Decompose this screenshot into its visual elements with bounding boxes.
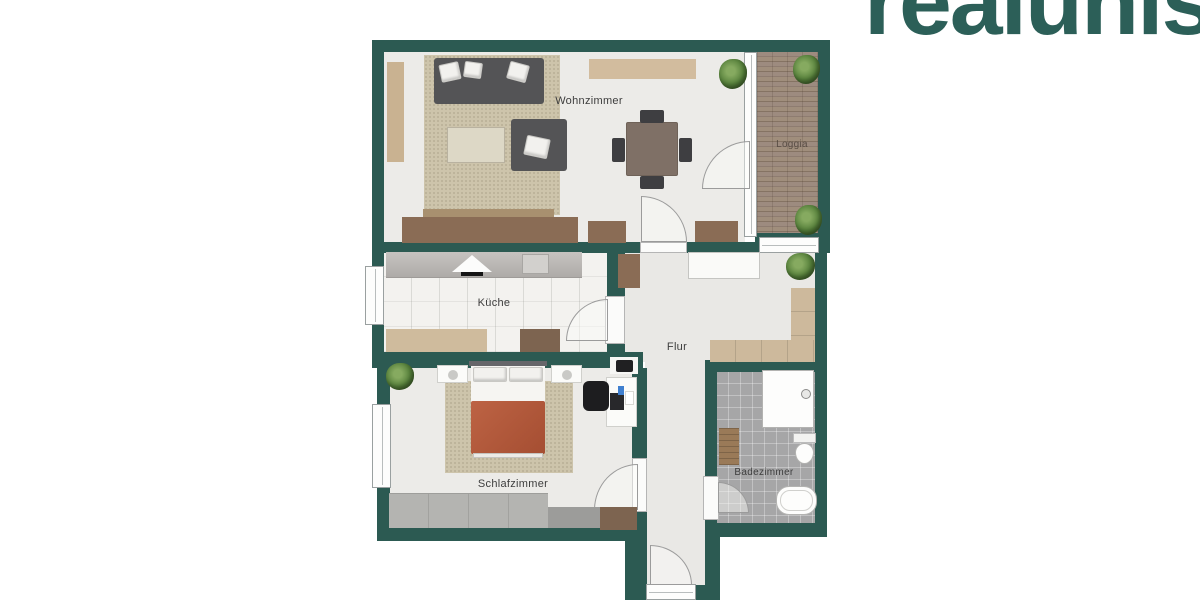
kitchen-table <box>520 329 560 352</box>
entrance-door-sill <box>646 584 696 600</box>
shower <box>762 370 814 428</box>
bedroom-mat <box>548 507 600 528</box>
dining-chair-west <box>612 138 625 162</box>
wall-left-mid <box>372 323 384 352</box>
wall-right-main <box>815 238 827 537</box>
cabinet-flur <box>618 254 640 288</box>
flur-loggia-window <box>759 237 819 253</box>
desk-accessory <box>618 386 624 395</box>
armchair <box>511 119 567 171</box>
laptop <box>610 393 624 410</box>
bedroom-window <box>372 404 391 488</box>
wall-bath-bottom <box>705 523 827 537</box>
office-chair <box>583 381 609 411</box>
brand-logo: realunis <box>864 0 1200 46</box>
door-frame-kitchen <box>605 296 625 344</box>
wall-vestibule-left <box>625 541 647 600</box>
dining-table <box>626 122 678 176</box>
floor-flur-corridor <box>645 362 705 541</box>
bedroom-dresser <box>600 507 637 530</box>
coffee-rug <box>447 127 505 163</box>
desk-paper <box>625 391 634 405</box>
cabinet-b <box>695 221 738 242</box>
hall-sideboard <box>688 252 760 279</box>
dining-chair-east <box>679 138 692 162</box>
nightstand-left <box>437 365 468 383</box>
sideboard-long <box>402 217 578 243</box>
nightstand-right <box>551 365 582 383</box>
wall-shelf <box>387 62 404 162</box>
bathtub <box>776 486 817 515</box>
room-label-wohnzimmer: Wohnzimmer <box>555 95 623 107</box>
room-label-flur: Flur <box>667 341 687 353</box>
wall-top <box>372 40 830 52</box>
dining-chair-north <box>640 110 664 123</box>
room-label-schlafzimmer: Schlafzimmer <box>478 478 548 490</box>
double-bed <box>469 361 547 458</box>
kitchen-sink <box>522 254 549 274</box>
sofa <box>434 58 544 104</box>
room-label-badezimmer: Badezimmer <box>734 467 793 478</box>
kitchen-window <box>365 266 384 325</box>
sideboard-top <box>589 59 696 79</box>
kitchen-bench <box>386 329 487 352</box>
room-label-loggia: Loggia <box>776 139 808 150</box>
toilet-tank <box>793 433 816 443</box>
room-label-kueche: Küche <box>478 297 511 309</box>
bedroom-wardrobe <box>389 493 548 528</box>
cabinet-a <box>588 221 626 243</box>
door-frame-bathroom <box>703 476 719 520</box>
bath-bench <box>719 428 739 465</box>
wall-vestibule-bottom-right <box>693 585 720 600</box>
printer <box>616 360 633 372</box>
hall-wardrobe-horizontal <box>710 340 815 362</box>
dining-chair-south <box>640 176 664 189</box>
wall-left-upper <box>372 52 384 268</box>
bed-duvet <box>471 401 545 454</box>
kitchen-counter <box>386 252 582 278</box>
door-frame-wohn-flur <box>640 242 687 253</box>
stove-bar <box>461 272 483 276</box>
